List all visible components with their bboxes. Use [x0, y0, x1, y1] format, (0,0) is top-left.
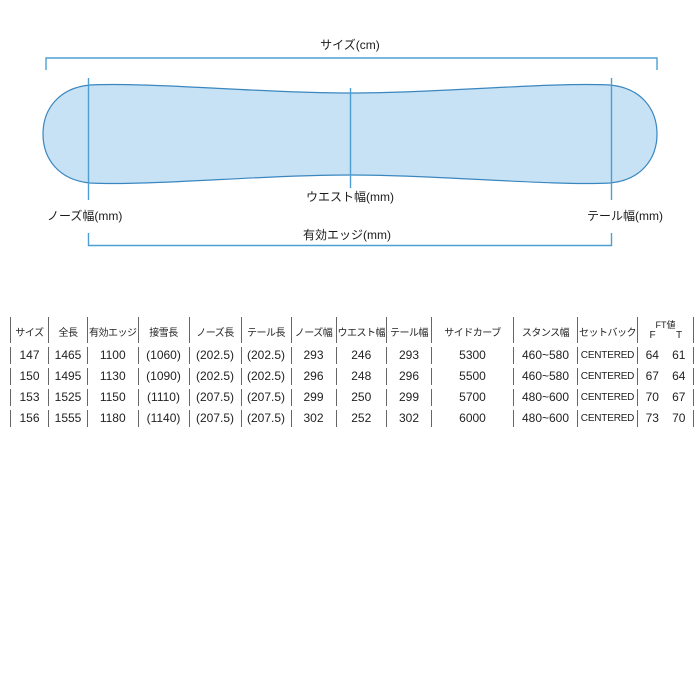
cell-stance-width: 460~580	[513, 368, 577, 385]
table-row-147: 147 1465 1100 (1060) (202.5) (202.5) 293…	[10, 347, 694, 364]
cell-effective-edge: 1150	[87, 389, 138, 406]
header-stance-width: スタンス幅	[513, 317, 577, 343]
spec-table: サイズ 全長 有効エッジ 接雪長 ノーズ長 テール長 ノーズ幅 ウエスト幅 テー…	[10, 313, 694, 431]
cell-nose-width: 302	[291, 410, 336, 427]
waist-width-label: ウエスト幅(mm)	[0, 188, 700, 205]
snowboard-dimension-diagram: サイズ(cm) ウエスト幅(mm) ノーズ幅(mm) テール幅(mm) 有効エッ…	[0, 0, 700, 260]
cell-contact-length: (1140)	[138, 410, 189, 427]
cell-tail-length: (202.5)	[241, 347, 291, 364]
tail-width-label: テール幅(mm)	[587, 207, 663, 224]
table-row-153: 153 1525 1150 (1110) (207.5) (207.5) 299…	[10, 389, 694, 406]
ft-tail-value: 70	[666, 411, 693, 426]
cell-stance-width: 480~600	[513, 410, 577, 427]
cell-waist-width: 248	[336, 368, 387, 385]
cell-tail-width: 299	[386, 389, 431, 406]
cell-sidecut: 5300	[431, 347, 513, 364]
table-row-156: 156 1555 1180 (1140) (207.5) (207.5) 302…	[10, 410, 694, 427]
ft-front-label: F	[639, 330, 666, 341]
cell-total-length: 1525	[48, 389, 87, 406]
header-nose-width: ノーズ幅	[291, 317, 336, 343]
ft-tail-value: 67	[666, 390, 693, 405]
ft-front-value: 64	[639, 348, 666, 363]
cell-effective-edge: 1180	[87, 410, 138, 427]
ft-value-label: FT値	[639, 320, 692, 330]
cell-waist-width: 246	[336, 347, 387, 364]
cell-waist-width: 250	[336, 389, 387, 406]
cell-sidecut: 5700	[431, 389, 513, 406]
cell-nose-width: 293	[291, 347, 336, 364]
ft-tail-value: 61	[666, 348, 693, 363]
cell-tail-width: 302	[386, 410, 431, 427]
cell-nose-length: (202.5)	[189, 368, 241, 385]
cell-size: 156	[10, 410, 48, 427]
header-tail-length: テール長	[241, 317, 291, 343]
cell-size: 153	[10, 389, 48, 406]
ft-tail-value: 64	[666, 369, 693, 384]
cell-contact-length: (1090)	[138, 368, 189, 385]
ft-tail-label: T	[666, 330, 693, 341]
header-effective-edge: 有効エッジ	[87, 317, 138, 343]
cell-ft-values: 67 64	[637, 368, 694, 385]
header-contact-length: 接雪長	[138, 317, 189, 343]
cell-nose-width: 299	[291, 389, 336, 406]
cell-total-length: 1495	[48, 368, 87, 385]
cell-tail-length: (202.5)	[241, 368, 291, 385]
spec-table-header-row: サイズ 全長 有効エッジ 接雪長 ノーズ長 テール長 ノーズ幅 ウエスト幅 テー…	[10, 317, 694, 343]
cell-ft-values: 64 61	[637, 347, 694, 364]
header-tail-width: テール幅	[386, 317, 431, 343]
cell-setback: CENTERED	[577, 368, 637, 385]
size-bracket	[46, 58, 657, 70]
cell-stance-width: 460~580	[513, 347, 577, 364]
cell-effective-edge: 1130	[87, 368, 138, 385]
cell-ft-values: 70 67	[637, 389, 694, 406]
cell-setback: CENTERED	[577, 410, 637, 427]
cell-tail-width: 296	[386, 368, 431, 385]
cell-nose-length: (202.5)	[189, 347, 241, 364]
ft-front-value: 73	[639, 411, 666, 426]
cell-sidecut: 6000	[431, 410, 513, 427]
size-label: サイズ(cm)	[0, 36, 700, 53]
cell-contact-length: (1060)	[138, 347, 189, 364]
effective-edge-label: 有効エッジ(mm)	[0, 226, 694, 243]
header-nose-length: ノーズ長	[189, 317, 241, 343]
cell-nose-width: 296	[291, 368, 336, 385]
cell-sidecut: 5500	[431, 368, 513, 385]
cell-size: 150	[10, 368, 48, 385]
cell-ft-values: 73 70	[637, 410, 694, 427]
cell-total-length: 1465	[48, 347, 87, 364]
cell-nose-length: (207.5)	[189, 410, 241, 427]
cell-tail-length: (207.5)	[241, 410, 291, 427]
ft-sub-headers: F T	[639, 330, 692, 341]
cell-nose-length: (207.5)	[189, 389, 241, 406]
cell-setback: CENTERED	[577, 389, 637, 406]
cell-total-length: 1555	[48, 410, 87, 427]
cell-contact-length: (1110)	[138, 389, 189, 406]
cell-stance-width: 480~600	[513, 389, 577, 406]
ft-front-value: 67	[639, 369, 666, 384]
header-ft-value: FT値 F T	[637, 317, 694, 343]
cell-tail-length: (207.5)	[241, 389, 291, 406]
header-setback: セットバック	[577, 317, 637, 343]
header-sidecut: サイドカーブ	[431, 317, 513, 343]
header-waist-width: ウエスト幅	[336, 317, 387, 343]
table-row-150: 150 1495 1130 (1090) (202.5) (202.5) 296…	[10, 368, 694, 385]
ft-front-value: 70	[639, 390, 666, 405]
header-total-length: 全長	[48, 317, 87, 343]
cell-setback: CENTERED	[577, 347, 637, 364]
cell-effective-edge: 1100	[87, 347, 138, 364]
cell-waist-width: 252	[336, 410, 387, 427]
header-size: サイズ	[10, 317, 48, 343]
nose-width-label: ノーズ幅(mm)	[47, 207, 122, 224]
cell-tail-width: 293	[386, 347, 431, 364]
cell-size: 147	[10, 347, 48, 364]
